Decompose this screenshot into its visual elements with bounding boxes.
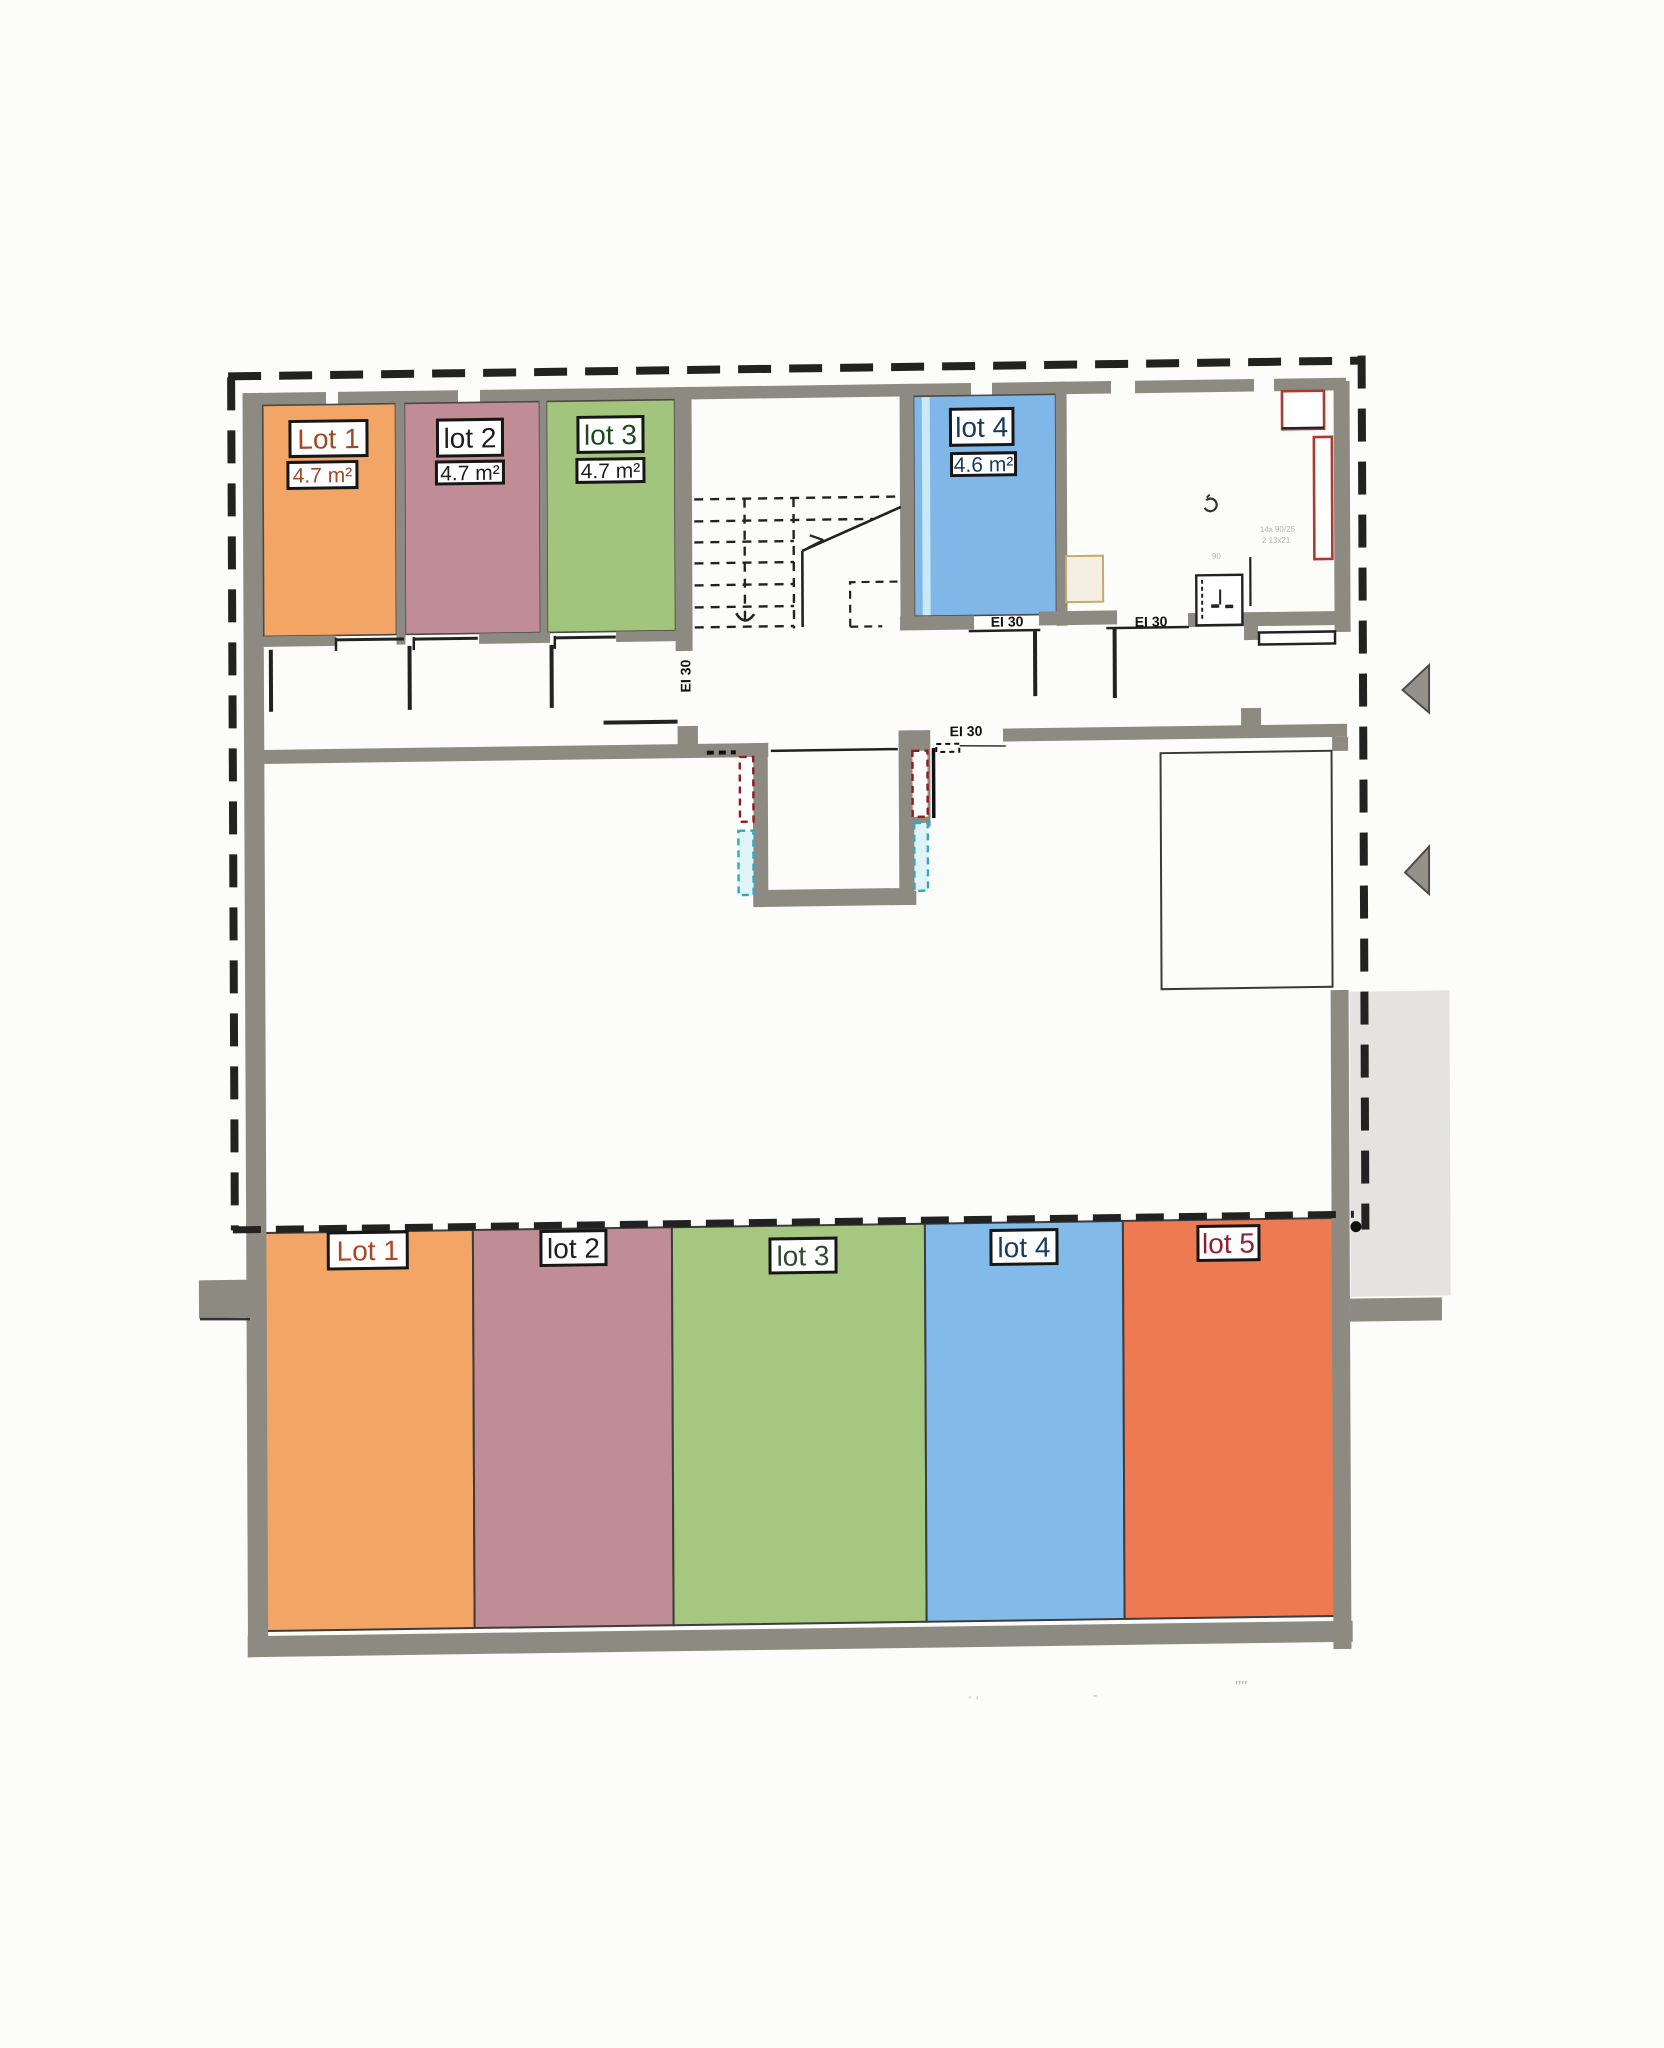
svg-text:. ,: . ,	[968, 1686, 979, 1701]
svg-text:4.7 m²: 4.7 m²	[581, 460, 641, 484]
svg-text:lot 2: lot 2	[547, 1233, 600, 1265]
svg-text:4.7 m²: 4.7 m²	[293, 464, 353, 488]
svg-text:lot 3: lot 3	[776, 1240, 829, 1272]
svg-text:4.7 m²: 4.7 m²	[440, 462, 500, 486]
svg-text:lot 5: lot 5	[1202, 1228, 1255, 1260]
svg-text:EI 30: EI 30	[991, 613, 1024, 629]
svg-text:90: 90	[1212, 552, 1221, 561]
svg-text:lot 2: lot 2	[443, 422, 496, 454]
svg-text:14x 90/25: 14x 90/25	[1260, 524, 1296, 533]
svg-text:-: -	[1093, 1687, 1097, 1702]
svg-text:lot 3: lot 3	[584, 419, 637, 451]
svg-text:EI 30: EI 30	[677, 659, 693, 692]
svg-text:4.6 m²: 4.6 m²	[954, 453, 1014, 477]
svg-text:2 13x21: 2 13x21	[1262, 536, 1291, 545]
svg-text:EI 30: EI 30	[950, 723, 983, 739]
svg-text:lot 4: lot 4	[997, 1232, 1050, 1264]
svg-text:Lot 1: Lot 1	[337, 1235, 399, 1267]
svg-text:’’’’: ’’’’	[1235, 1678, 1248, 1695]
svg-text:EI 30: EI 30	[1135, 613, 1168, 629]
svg-text:lot 4: lot 4	[955, 411, 1008, 443]
svg-text:Lot 1: Lot 1	[297, 423, 359, 455]
